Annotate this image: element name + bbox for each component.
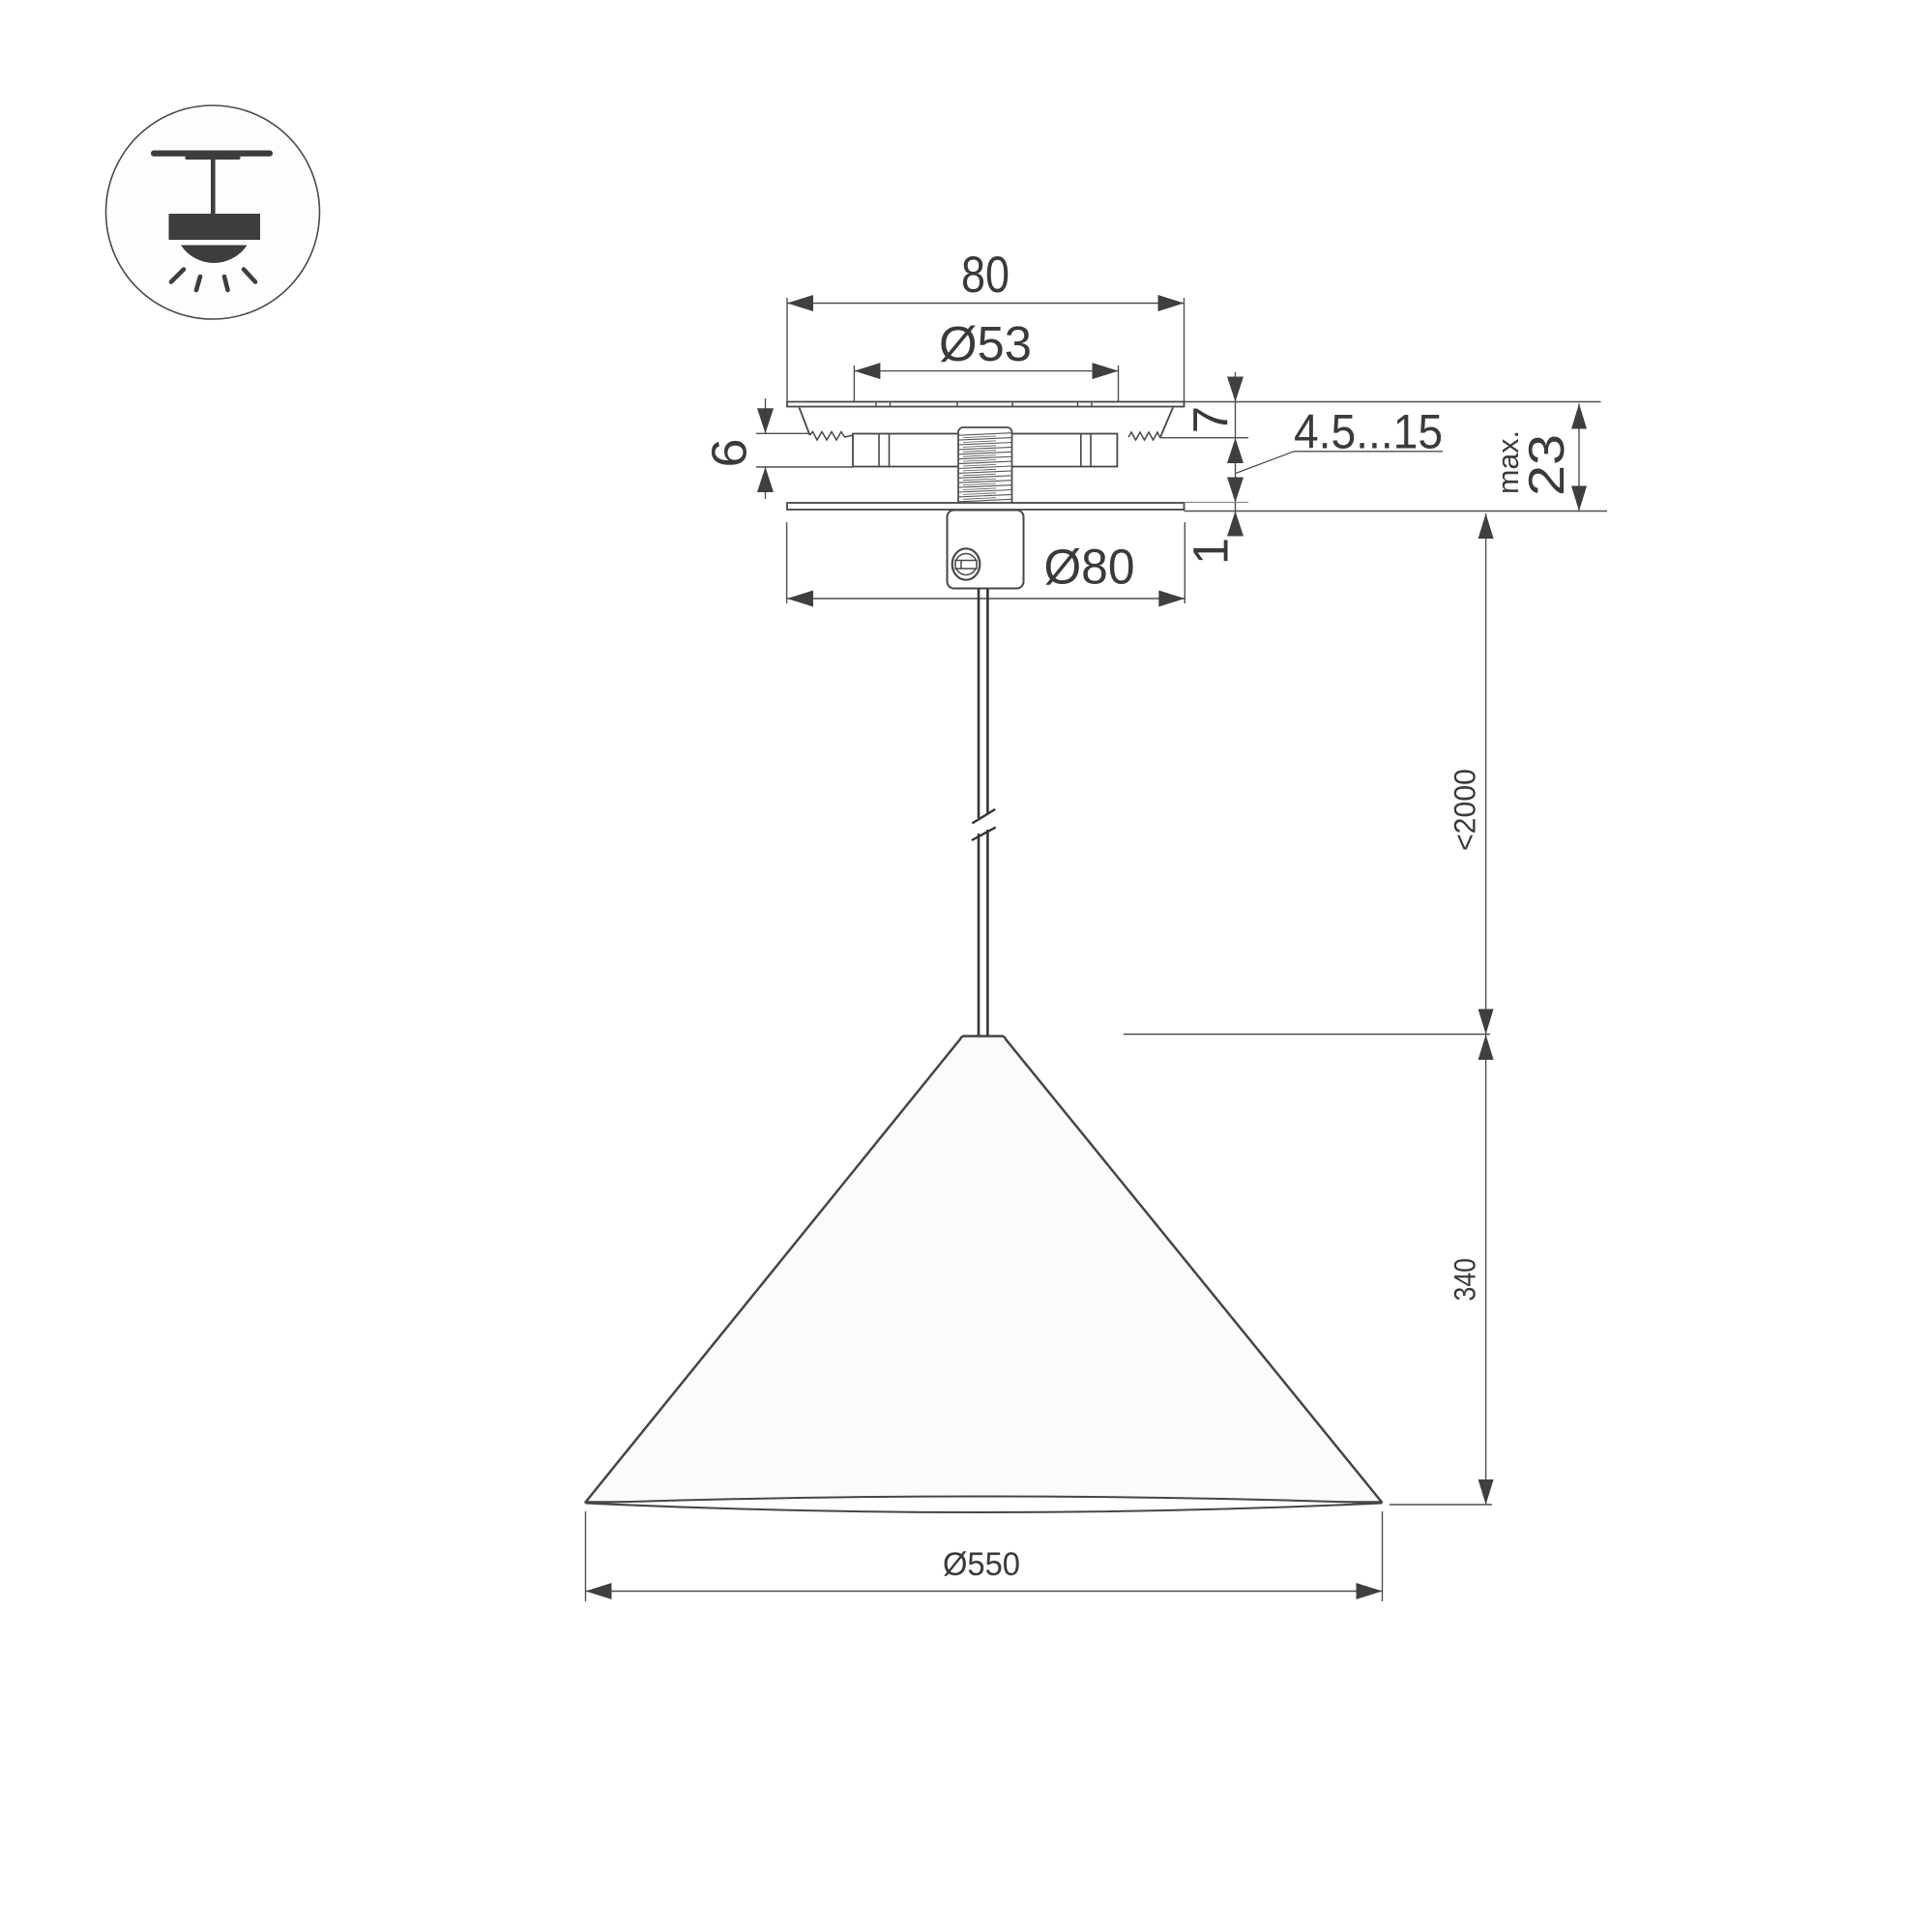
svg-text:7: 7 xyxy=(1184,406,1239,433)
svg-text:Ø80: Ø80 xyxy=(1044,540,1135,595)
svg-text:80: 80 xyxy=(961,247,1010,304)
svg-text:6: 6 xyxy=(702,439,757,468)
svg-text:Ø53: Ø53 xyxy=(939,316,1032,371)
svg-text:<2000: <2000 xyxy=(1448,769,1482,851)
svg-text:23: 23 xyxy=(1519,434,1575,496)
svg-text:Ø550: Ø550 xyxy=(943,1546,1020,1583)
svg-text:4.5...15: 4.5...15 xyxy=(1294,405,1443,459)
svg-text:340: 340 xyxy=(1448,1258,1482,1302)
svg-text:1: 1 xyxy=(1184,538,1239,565)
